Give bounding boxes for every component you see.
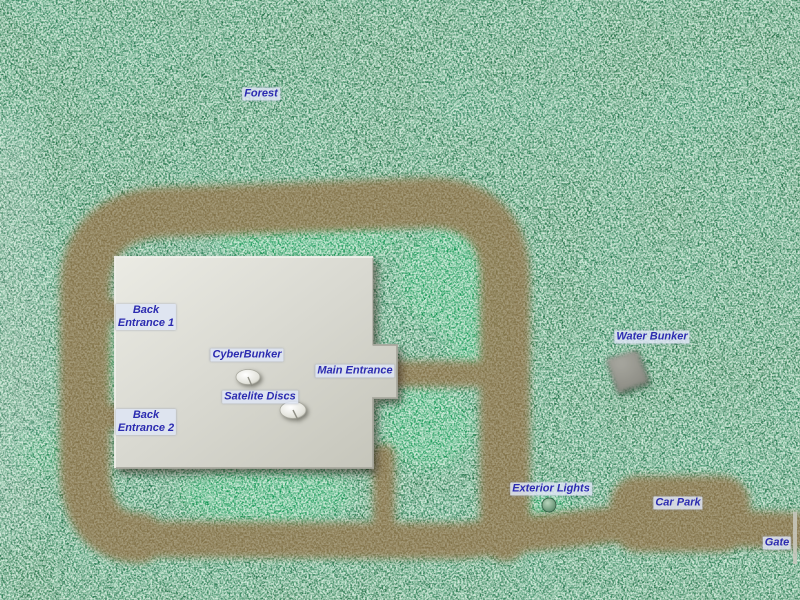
- label-gate: Gate: [763, 537, 791, 550]
- label-forest: Forest: [242, 88, 280, 101]
- terrain-canvas: [0, 0, 800, 600]
- label-exterior-lights: Exterior Lights: [510, 483, 592, 496]
- label-cyberbunker: CyberBunker: [210, 349, 283, 362]
- bunker-building: [115, 257, 397, 468]
- label-main-entrance: Main Entrance: [315, 365, 394, 378]
- label-satelite-discs: Satelite Discs: [222, 391, 298, 404]
- label-back-entrance-1: Back Entrance 1: [116, 304, 176, 330]
- site-map[interactable]: Forest Back Entrance 1 CyberBunker Satel…: [0, 0, 800, 600]
- label-back-entrance-2: Back Entrance 2: [116, 409, 176, 435]
- label-water-bunker: Water Bunker: [614, 331, 689, 344]
- exterior-light: [542, 498, 556, 512]
- label-car-park: Car Park: [653, 497, 702, 510]
- gate-barrier: [793, 512, 797, 564]
